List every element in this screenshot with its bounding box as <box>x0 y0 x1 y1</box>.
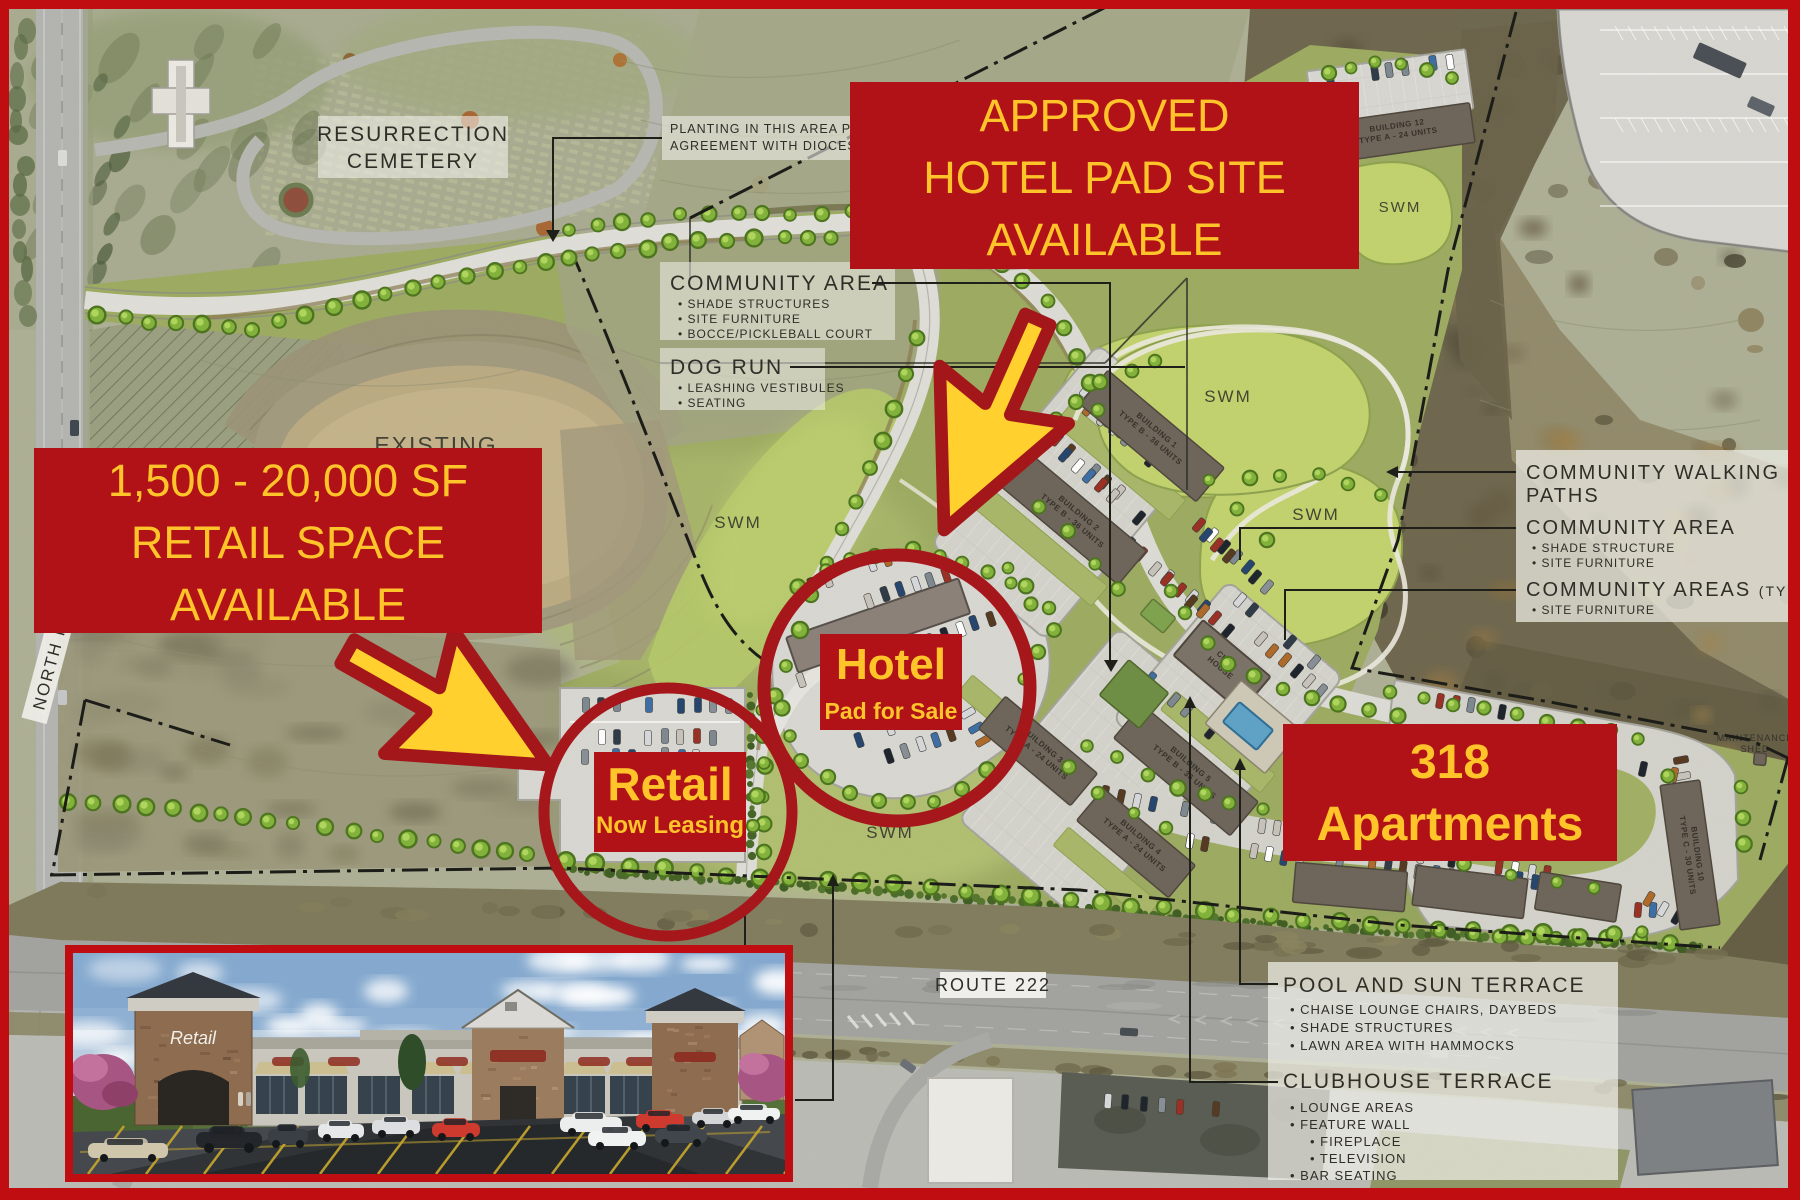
svg-text:Now Leasing: Now Leasing <box>596 812 744 839</box>
svg-text:Pad for Sale: Pad for Sale <box>825 698 958 724</box>
svg-text:Hotel: Hotel <box>836 640 946 689</box>
svg-text:Retail: Retail <box>170 1028 217 1048</box>
svg-text:Apartments: Apartments <box>1317 798 1584 851</box>
svg-text:HOTEL PAD SITE: HOTEL PAD SITE <box>923 152 1286 203</box>
svg-text:Retail: Retail <box>607 758 732 810</box>
svg-text:APPROVED: APPROVED <box>979 90 1229 141</box>
svg-text:318: 318 <box>1410 736 1490 789</box>
svg-text:RETAIL SPACE: RETAIL SPACE <box>131 517 445 568</box>
svg-text:AVAILABLE: AVAILABLE <box>987 214 1223 265</box>
svg-text:AVAILABLE: AVAILABLE <box>170 579 406 630</box>
svg-text:1,500 - 20,000 SF: 1,500 - 20,000 SF <box>108 455 468 506</box>
